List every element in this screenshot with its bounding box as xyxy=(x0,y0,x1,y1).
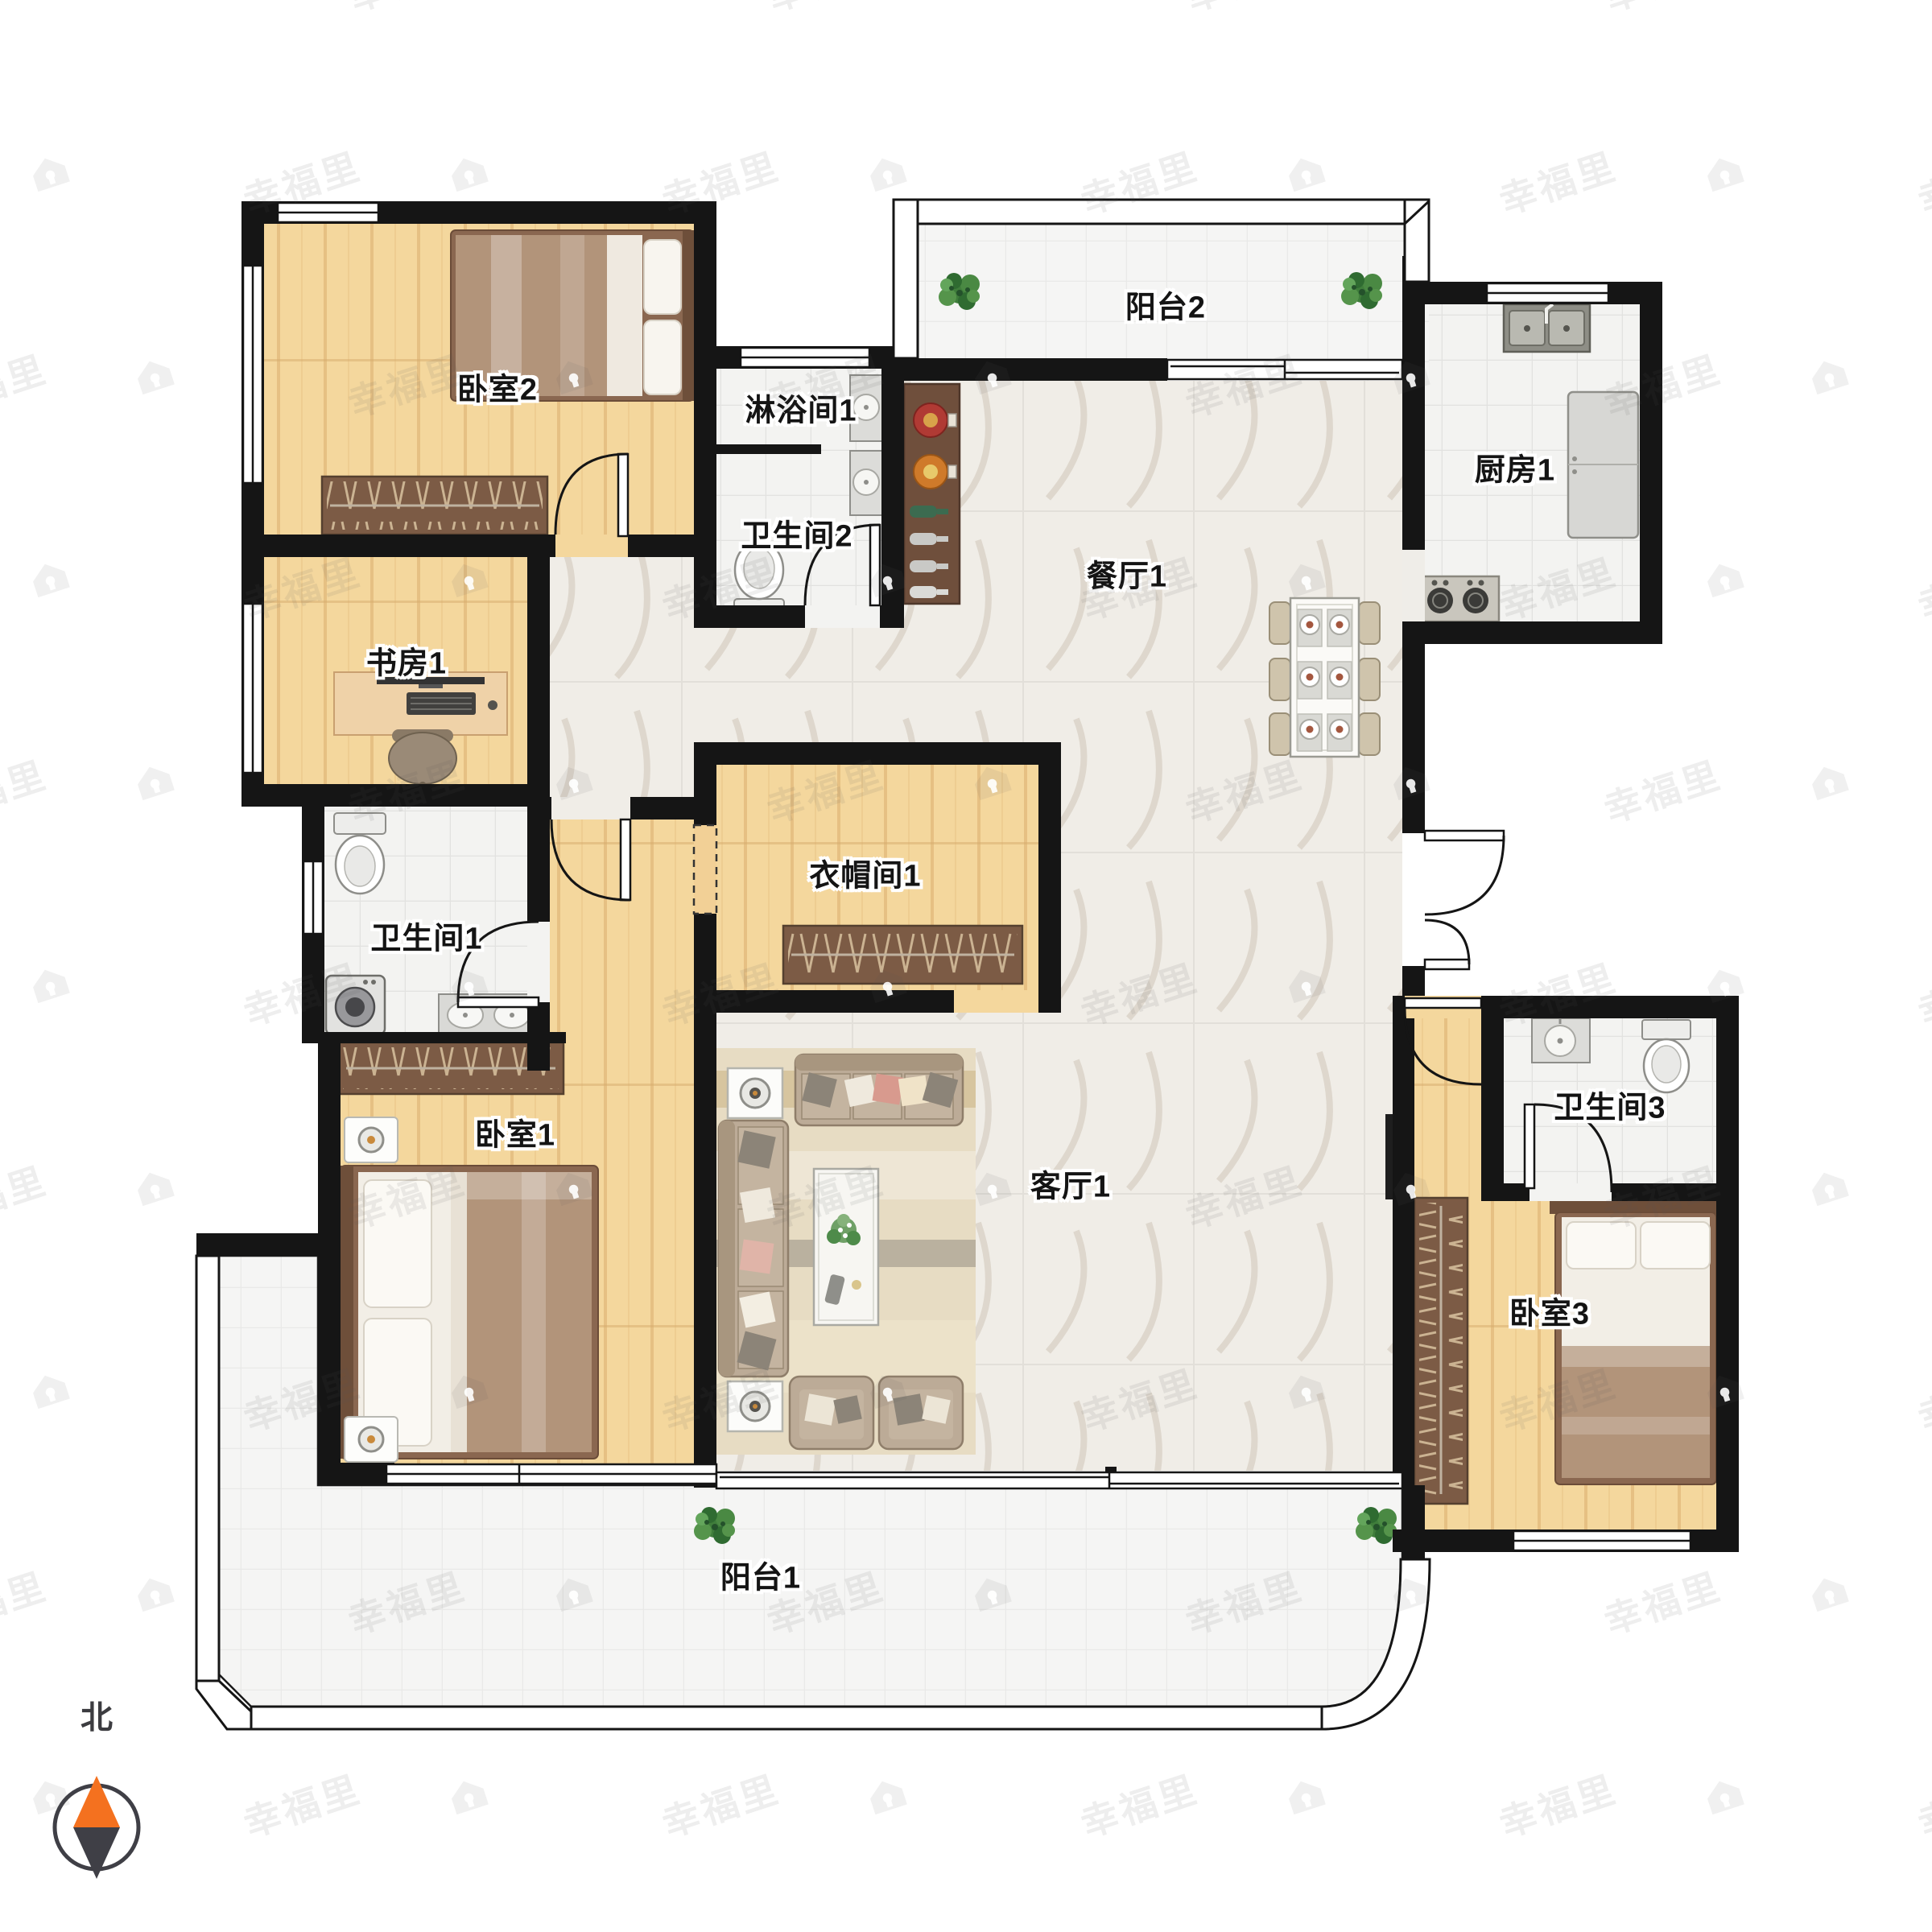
room-label-bedroom-1: 卧室1 xyxy=(475,1110,555,1154)
kitchen-sink xyxy=(1504,304,1590,352)
floor-plan-drawing xyxy=(0,0,1932,1932)
coffee-table xyxy=(814,1169,878,1325)
sink-bathroom-3 xyxy=(1532,1018,1590,1063)
nightstand-bedroom-1-bottom xyxy=(345,1417,398,1462)
room-label-dining-1: 餐厅1 xyxy=(1087,551,1167,596)
room-label-bathroom-3: 卫生间3 xyxy=(1554,1083,1666,1127)
dining-table-set xyxy=(1269,598,1380,757)
room-label-balcony-2: 阳台2 xyxy=(1125,283,1206,327)
parapet-balcony-1-left xyxy=(196,1256,219,1681)
room-label-kitchen-1: 厨房1 xyxy=(1475,445,1555,489)
window-bedroom-2-top xyxy=(278,203,378,222)
room-label-study-1: 书房1 xyxy=(366,638,447,683)
room-label-bathroom-2: 卫生间2 xyxy=(741,511,852,555)
room-label-balcony-1: 阳台1 xyxy=(720,1553,801,1597)
sofa-long xyxy=(719,1121,788,1377)
parapet-balcony-1-bottom xyxy=(251,1707,1322,1729)
floor-plan: 卧室2 淋浴间1 卫生间2 阳台2 厨房1 餐厅1 书房1 卫生间1 衣帽间1 … xyxy=(0,0,1932,1932)
room-label-bedroom-3: 卧室3 xyxy=(1509,1289,1590,1333)
sink-bathroom-2 xyxy=(850,451,882,515)
gas-stove xyxy=(1417,576,1499,621)
sliding-door-living-balcony xyxy=(716,1472,1402,1488)
refrigerator-icon xyxy=(1568,392,1638,538)
side-table-lamp-bottom xyxy=(728,1381,782,1431)
toilet-bathroom-1 xyxy=(334,813,386,894)
compass-north-label: 北 xyxy=(80,1691,113,1738)
entry-door-double xyxy=(1425,831,1504,969)
window-bedroom-3 xyxy=(1513,1531,1690,1550)
wardrobe-cloakroom-1 xyxy=(783,926,1022,984)
window-shower-1 xyxy=(741,348,869,367)
open-passage-dashed xyxy=(694,825,716,914)
room-label-living-1: 客厅1 xyxy=(1030,1162,1111,1206)
compass: 北 xyxy=(40,1699,161,1892)
room-label-cloakroom-1: 衣帽间1 xyxy=(809,851,921,895)
sofa-three-seat xyxy=(795,1055,963,1125)
wardrobe-bedroom-2 xyxy=(322,477,547,535)
window-kitchen-1 xyxy=(1487,283,1608,303)
bed-double-bedroom-1 xyxy=(341,1166,598,1459)
wardrobe-bedroom-3 xyxy=(1414,1198,1468,1504)
parapet-balcony-2-top xyxy=(894,200,1429,224)
floor-hall-bedroom-1 xyxy=(550,807,716,1071)
window-study-1 xyxy=(243,604,262,773)
room-label-shower-1: 淋浴间1 xyxy=(745,386,857,430)
side-table-lamp-top xyxy=(728,1068,782,1118)
bed-double-bedroom-3 xyxy=(1550,1199,1719,1484)
window-bedroom-2-left xyxy=(243,266,262,483)
window-bathroom-1 xyxy=(303,861,323,934)
armchair-right xyxy=(879,1377,963,1449)
washing-machine-icon xyxy=(326,976,385,1034)
sliding-door-balcony-2 xyxy=(1167,360,1402,379)
wine-cabinet xyxy=(904,384,960,604)
room-label-bathroom-1: 卫生间1 xyxy=(370,914,482,958)
toilet-bathroom-3 xyxy=(1642,1020,1690,1092)
room-label-bedroom-2: 卧室2 xyxy=(457,365,538,409)
armchair-left xyxy=(790,1377,873,1449)
parapet-balcony-2-left xyxy=(894,200,918,358)
nightstand-bedroom-1-top xyxy=(345,1117,398,1162)
window-bedroom-1-balcony xyxy=(386,1464,716,1484)
